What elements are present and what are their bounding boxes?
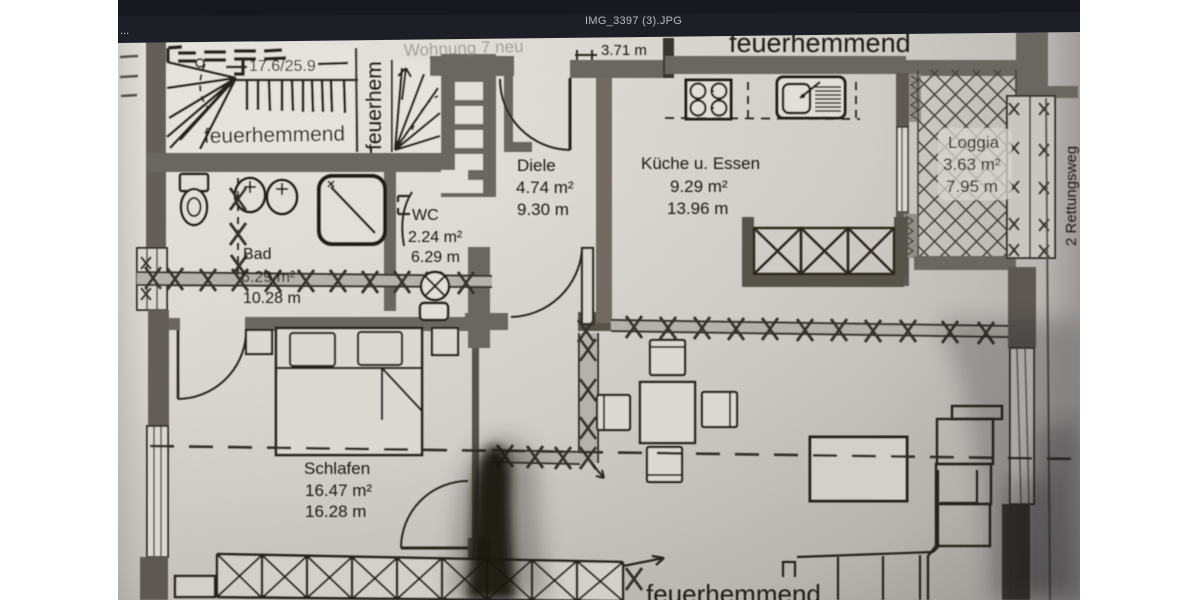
svg-text:6.29 m²: 6.29 m² [241, 269, 296, 286]
svg-text:10.28 m: 10.28 m [243, 290, 301, 307]
svg-text:feuerhem: feuerhem [363, 61, 386, 150]
svg-text:Schlafen: Schlafen [304, 459, 370, 478]
svg-text:17.6/25.9: 17.6/25.9 [249, 58, 316, 75]
svg-text:16.47 m²: 16.47 m² [305, 481, 372, 500]
svg-text:9.29 m²: 9.29 m² [670, 177, 728, 196]
svg-text:2.24 m²: 2.24 m² [408, 229, 463, 246]
svg-text:feuerhemmend: feuerhemmend [204, 123, 346, 148]
svg-text:2 Rettungsweg: 2 Rettungsweg [1063, 146, 1080, 246]
svg-text:IMG_3397 (3).JPG: IMG_3397 (3).JPG [585, 15, 682, 27]
svg-text:Loggia: Loggia [948, 133, 1000, 152]
svg-text:7.95 m: 7.95 m [946, 177, 998, 196]
svg-text:WC: WC [412, 207, 439, 224]
svg-text:3.63 m²: 3.63 m² [943, 155, 1001, 174]
svg-text:3.71 m: 3.71 m [601, 42, 647, 59]
svg-text:16.28 m: 16.28 m [305, 502, 366, 521]
svg-text:9.30 m: 9.30 m [517, 200, 569, 219]
svg-text:4.74 m²: 4.74 m² [516, 178, 574, 197]
svg-text:6.29 m: 6.29 m [411, 249, 460, 266]
svg-text:feuerhemmend: feuerhemmend [646, 579, 821, 600]
svg-text:13.96 m: 13.96 m [667, 199, 728, 218]
svg-text:Diele: Diele [517, 156, 556, 175]
svg-text:...: ... [120, 25, 129, 37]
svg-text:Küche u. Essen: Küche u. Essen [641, 154, 760, 173]
svg-text:Bad: Bad [243, 246, 271, 263]
